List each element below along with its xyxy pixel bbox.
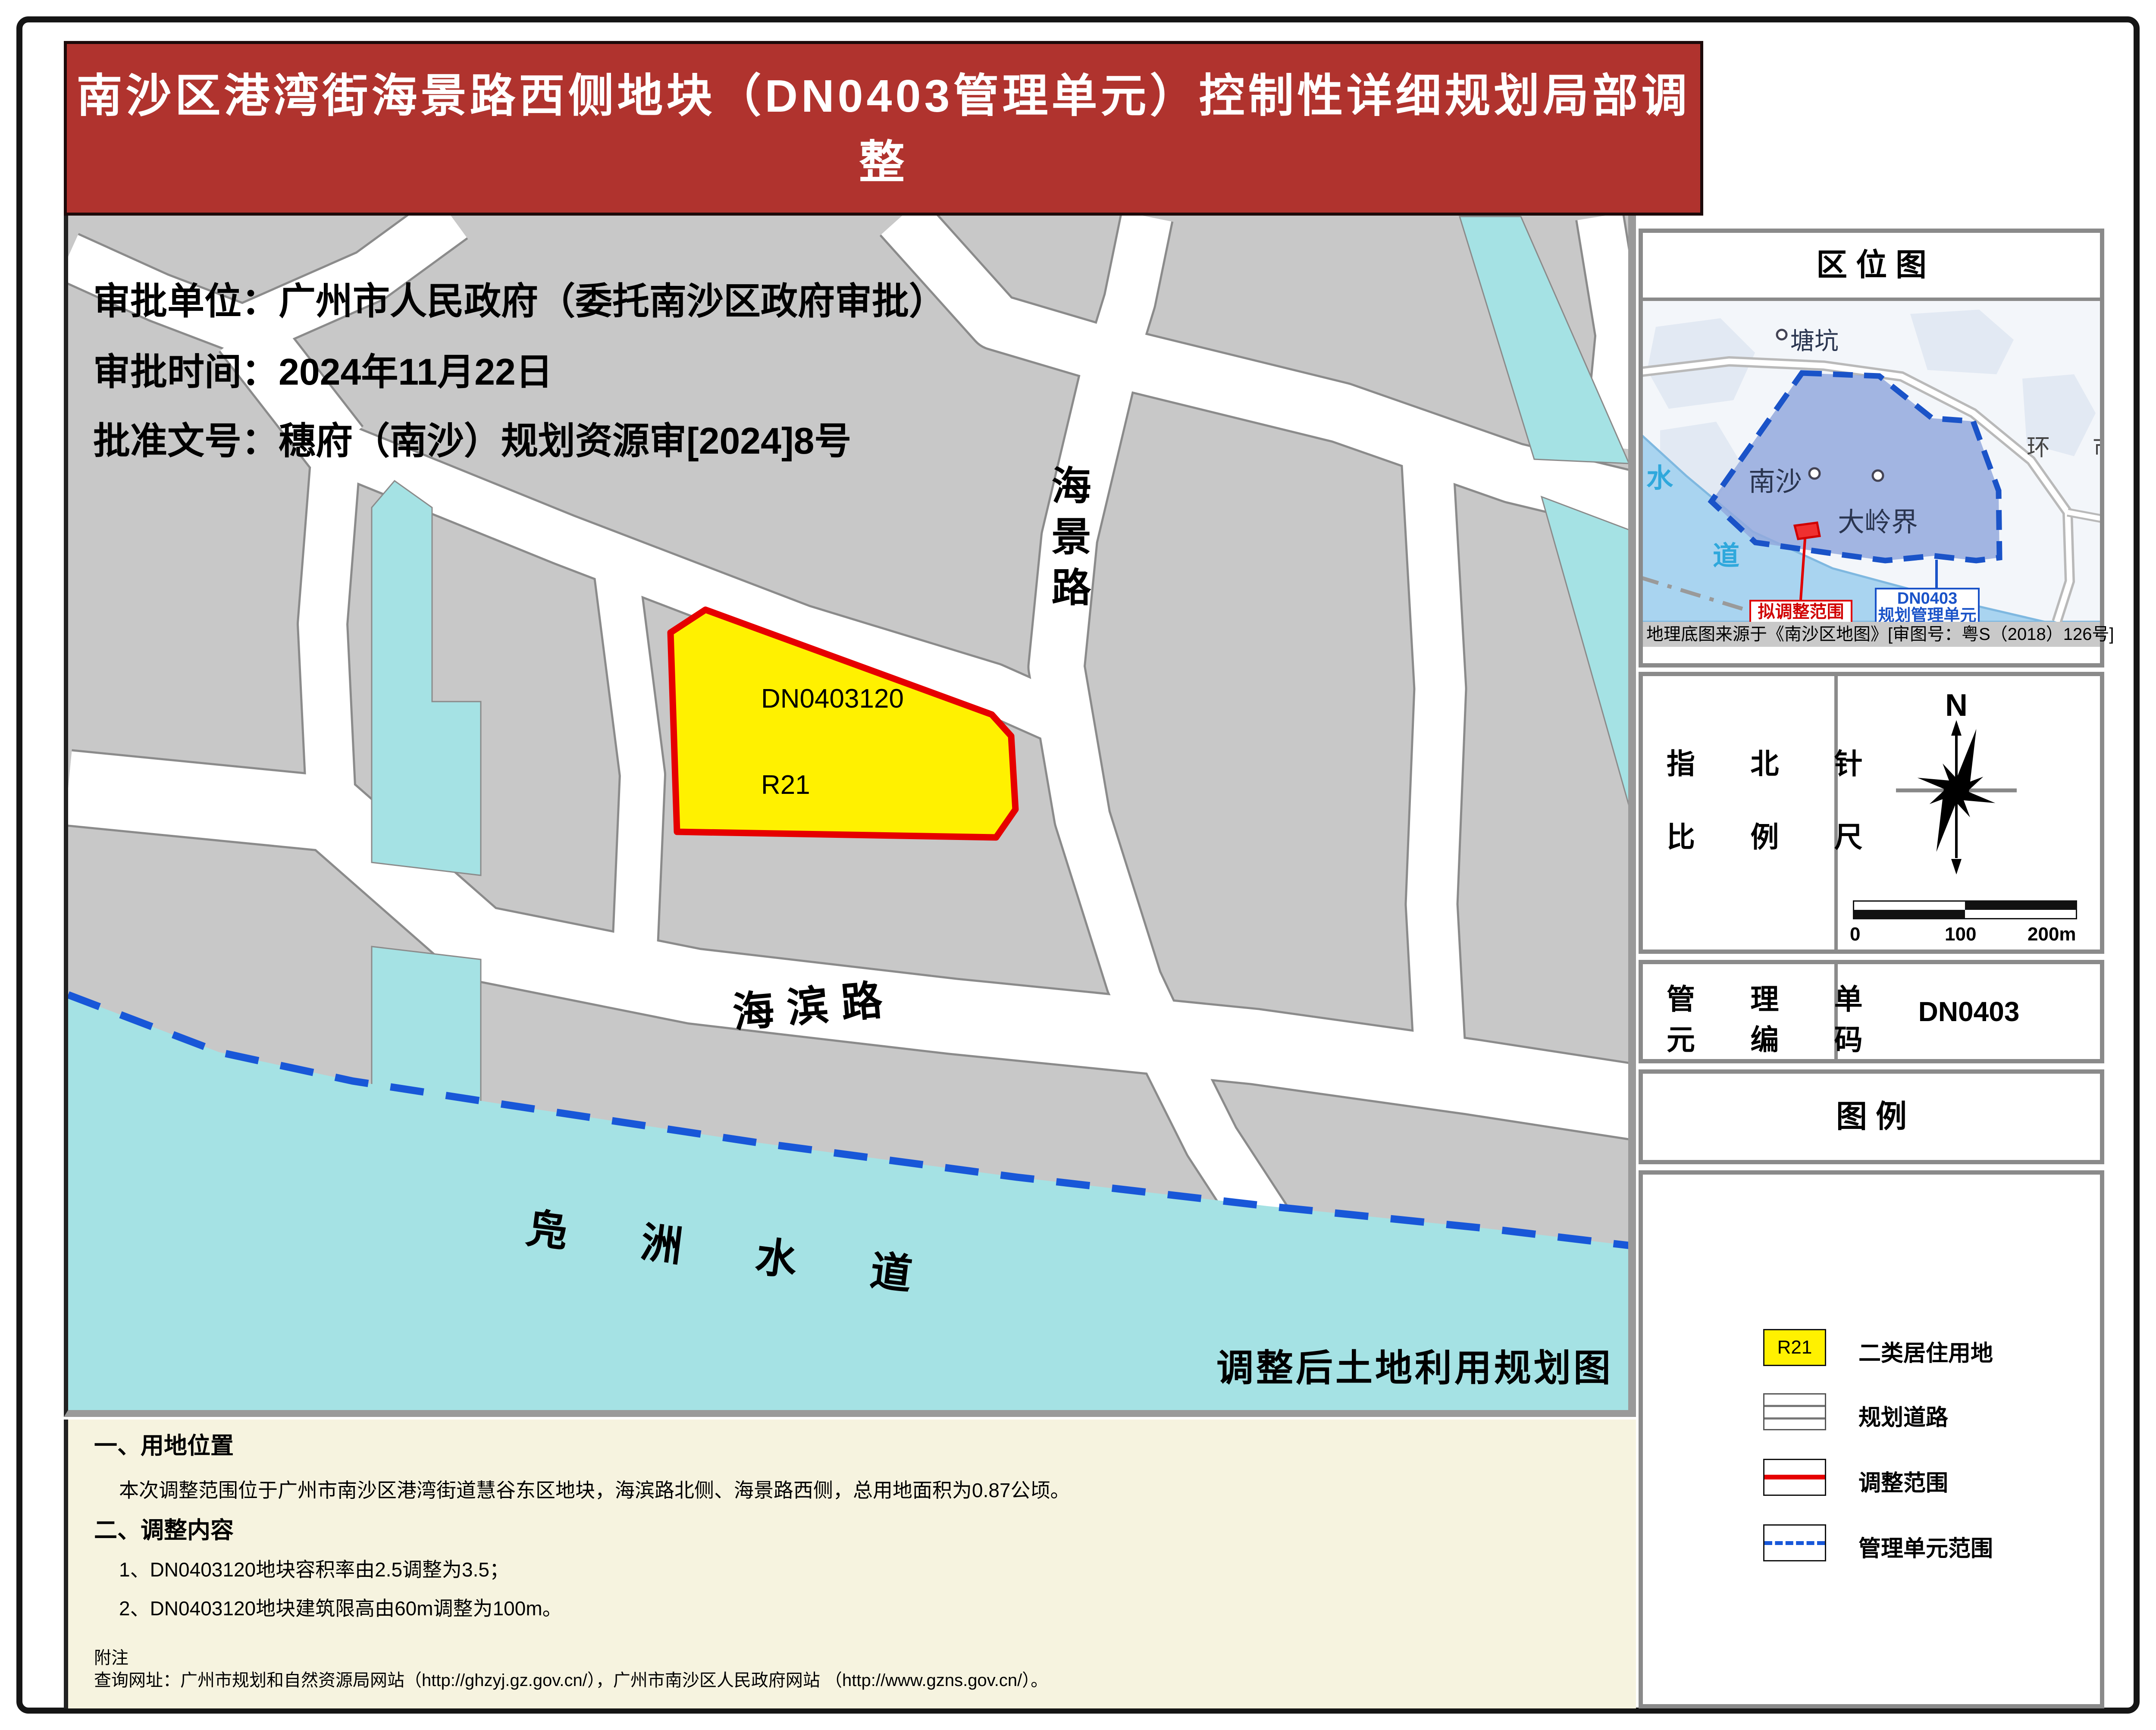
unit-code-value: DN0403 <box>1838 964 2100 1059</box>
unit-code-label-cell: 管 理 单 元 编 码 <box>1643 964 1838 1059</box>
legend-title-box: 图 例 <box>1639 1069 2104 1164</box>
unit-label-line1: DN0403 <box>1877 590 1978 608</box>
legend-title: 图 例 <box>1643 1074 2100 1160</box>
north-letter: N <box>1945 689 1968 723</box>
loc-water-char-2: 道 <box>1713 534 1739 573</box>
unit-label-line2: 规划管理单元 <box>1877 608 1978 622</box>
notes-item-1: 1、DN0403120地块容积率由2.5调整为3.5； <box>119 1554 509 1583</box>
notes-heading-2: 二、调整内容 <box>94 1511 234 1545</box>
loc-adjust-parcel <box>1795 523 1820 539</box>
loc-water-char-1: 水 <box>1646 456 1673 495</box>
legend-swatch-unit <box>1763 1524 1826 1561</box>
loc-label-nansha: 南沙 <box>1749 460 1802 498</box>
scale-tick-0: 0 <box>1850 924 1860 945</box>
map-caption: 调整后土地利用规划图 <box>1216 1338 1613 1392</box>
legend-swatch-residential: R21 <box>1763 1329 1826 1366</box>
parcel-code-label: DN0403120 <box>761 683 904 714</box>
legend-box: R21 二类居住用地 规划道路 调整范围 管理单元范围 <box>1639 1170 2104 1708</box>
canal-left-lower <box>372 946 481 1110</box>
notes-url: 查询网址：广州市规划和自然资源局网站（http://ghzyj.gz.gov.c… <box>94 1666 1048 1691</box>
legend-label-adjust: 调整范围 <box>1858 1465 1948 1497</box>
legend-swatch-text: R21 <box>1777 1337 1812 1358</box>
legend-label-road: 规划道路 <box>1858 1399 1948 1432</box>
adjust-range-label: 拟调整范围 <box>1749 600 1852 622</box>
loc-label-huanshi: 环 市 <box>2027 428 2100 462</box>
approval-docno: 批准文号：穗府（南沙）规划资源审[2024]8号 <box>93 411 851 464</box>
location-map-title: 区 位 图 <box>1643 233 2100 301</box>
road-label-haijing: 海景路 <box>1039 465 1097 617</box>
compass-cell: N 0 100 <box>1838 676 2100 950</box>
notes-item-2: 2、DN0403120地块建筑限高由60m调整为100m。 <box>119 1593 562 1621</box>
approval-date: 审批时间：2024年11月22日 <box>93 342 553 395</box>
notes-panel: 一、用地位置 本次调整范围位于广州市南沙区港湾街道慧谷东区地块，海滨路北侧、海景… <box>64 1420 1636 1708</box>
location-map-box: 区 位 图 <box>1639 229 2104 668</box>
notes-fuzhu: 附注 <box>94 1644 128 1669</box>
title-bar: 南沙区港湾街海景路西侧地块（DN0403管理单元）控制性详细规划局部调整 批后通… <box>64 41 1703 216</box>
north-arrow: N <box>1870 689 2043 879</box>
notes-heading-1: 一、用地位置 <box>94 1426 234 1460</box>
land-use-map: 审批单位：广州市人民政府（委托南沙区政府审批） 审批时间：2024年11月22日… <box>64 216 1636 1417</box>
scale-tick-200: 200m <box>2028 924 2076 945</box>
legend-label-residential: 二类居住用地 <box>1858 1335 1993 1367</box>
notes-paragraph-1: 本次调整范围位于广州市南沙区港湾街道慧谷东区地块，海滨路北侧、海景路西侧，总用地… <box>119 1475 1611 1503</box>
approval-unit: 审批单位：广州市人民政府（委托南沙区政府审批） <box>93 271 946 325</box>
loc-label-dalingjie: 大岭界 <box>1838 500 1918 539</box>
basemap-source-note: 地理底图来源于《南沙区地图》[审图号：粤S（2018）126号] <box>1643 622 2100 647</box>
page-title: 南沙区港湾街海景路西侧地块（DN0403管理单元）控制性详细规划局部调整 <box>67 59 1700 191</box>
unit-code-box: 管 理 单 元 编 码 DN0403 <box>1639 960 2104 1063</box>
scale-tick-100: 100 <box>1945 924 1976 945</box>
unit-label-box: DN0403 规划管理单元 <box>1875 588 1980 622</box>
compass-label-cell: 指 北 针 比 例 尺 <box>1643 676 1838 950</box>
loc-label-tangkeng: 塘坑 <box>1790 322 1839 357</box>
legend-swatch-road <box>1763 1393 1826 1430</box>
compass-scale-box: 指 北 针 比 例 尺 N <box>1639 672 2104 954</box>
scale-bar <box>1853 900 2077 919</box>
legend-label-unit: 管理单元范围 <box>1858 1530 1993 1563</box>
legend-swatch-adjust <box>1763 1459 1826 1496</box>
location-map: 塘坑 南沙 大岭界 环 市 水 道 拟调整范围 DN0403 规划管理单元 <box>1643 301 2100 622</box>
parcel-use-label: R21 <box>761 770 810 800</box>
